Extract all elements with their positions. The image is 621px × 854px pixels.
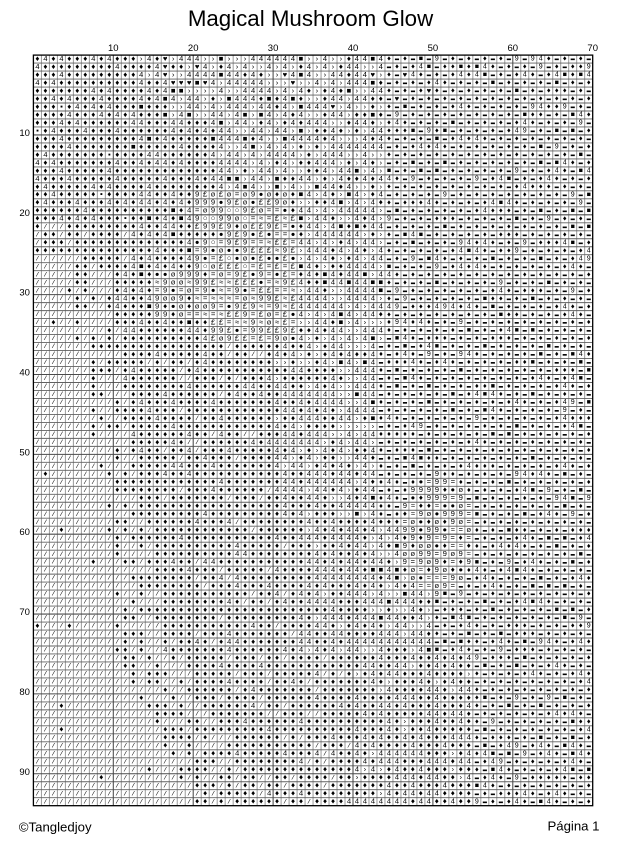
svg-text://////////: ////////// bbox=[36, 455, 116, 462]
svg-text://////////: ////////// bbox=[36, 399, 116, 406]
svg-text:////////////: //////////// bbox=[67, 726, 163, 733]
svg-text:♦♦: ♦♦ bbox=[267, 655, 283, 663]
svg-text:////: //// bbox=[123, 551, 155, 558]
svg-text:♦♦4♦: ♦♦4♦ bbox=[179, 639, 211, 647]
svg-text:♦▬♦▬♦▬■▬♦4♦4♦▬♦▬♦▬♦▬♦▬♦▬♦▬: ♦▬♦▬♦▬■▬♦4♦4♦▬♦▬♦▬♦▬♦▬♦▬♦▬ bbox=[387, 136, 595, 144]
svg-text://: // bbox=[187, 439, 203, 446]
svg-text:♦▬9▬♦▬♦▬♦▬♦▬■♦♦▬♦▬■▬♦▬♦▬♦▬: ♦▬9▬♦▬♦▬♦▬♦▬■♦♦▬♦▬■▬♦▬♦▬♦▬ bbox=[387, 295, 595, 303]
svg-text:70: 70 bbox=[19, 607, 30, 618]
svg-text://: // bbox=[123, 455, 139, 462]
svg-text:♦▬♦▬♦▬♦▬♦▬■▬♦▬♦4■▬■▬♦▬♦▬♦▬: ♦▬♦▬♦▬♦▬♦▬■▬♦▬♦4■▬■▬♦▬♦▬♦▬ bbox=[387, 327, 595, 335]
svg-text:////: //// bbox=[36, 287, 68, 294]
svg-text:♦♦♦4♦♦♦4♦4♦♦4♦4♦♦♦444: ♦♦♦4♦♦♦4♦4♦♦4♦4♦♦♦444 bbox=[307, 735, 475, 743]
svg-text:♦♦♦♦♦♦♦♦4: ♦♦♦♦♦♦♦♦4 bbox=[235, 759, 307, 767]
svg-text:60: 60 bbox=[508, 43, 519, 54]
svg-text:♦: ♦ bbox=[315, 759, 323, 767]
svg-text:////: //// bbox=[195, 742, 227, 749]
svg-text://: // bbox=[307, 710, 323, 717]
svg-text:9▬♦♦♦▬■▬♦▬♦▬♦▬♦: 9▬♦♦♦▬■▬♦▬♦▬♦▬♦ bbox=[475, 655, 595, 663]
svg-text:♦4♦♦♦4♦♦♦4♦4♦44♦4♦4♦999●9£ø●££: ♦4♦♦♦4♦♦♦4♦4♦44♦4♦4♦999●9£ø●££9ø♦››♦♦4■›… bbox=[35, 200, 386, 208]
svg-text://///////////: ///////////// bbox=[36, 694, 140, 701]
svg-text:▬♦4♦▬♦▬♦▬■▬♦▬♦4♦: ▬♦4♦▬♦▬♦▬■▬♦▬♦4♦ bbox=[467, 575, 595, 583]
svg-text://: // bbox=[123, 543, 139, 550]
svg-text:♦♦♦♦♦♦♦♦♦4♦♦44♦♦£99£9♦ø££9£=●♦: ♦♦♦♦♦♦♦♦♦4♦♦44♦♦£99£9♦ø££9£=●♦44›4■♦■♦44 bbox=[67, 224, 386, 232]
svg-text:♦4♦4›♦›♦4♦4♦♦4: ♦4♦4›♦›♦4♦4♦♦4 bbox=[267, 351, 379, 359]
svg-text://: // bbox=[131, 519, 147, 526]
svg-text:♦♦♦♦4♦♦♦♦♦♦: ♦♦♦♦4♦♦♦♦♦♦ bbox=[131, 391, 219, 399]
svg-text:///////: /////// bbox=[36, 383, 92, 390]
svg-text://////////: ////////// bbox=[36, 479, 116, 486]
svg-text:♦4♦♦4444♦♦♦444■444♦♦: ♦4♦♦4444♦♦♦444■444♦♦ bbox=[275, 599, 435, 607]
svg-text:♦♦♦4♦4♦♦♦♦♦♦44♦♦♦44♦♦♦4■›44›♦4: ♦♦♦4♦4♦♦♦♦♦♦44♦♦♦44♦♦♦4■›44›♦4›♦4♦444››♦… bbox=[35, 120, 386, 128]
svg-text://: // bbox=[171, 742, 187, 749]
svg-text:♦♦♦♦♦♦4: ♦♦♦♦♦♦4 bbox=[203, 703, 259, 711]
svg-text:▬♦▬♦4■▬♦♦■♦■4♦▬♦▬♦▬9▬♦▬♦♦9: ▬♦▬♦4■▬♦♦■♦■4♦▬♦▬♦▬9▬♦▬♦♦9 bbox=[387, 64, 595, 72]
svg-text:////////////////: //////////////// bbox=[36, 742, 164, 749]
svg-text:■▬♦▬■▬■▬♦▬♦▬♦▬♦▬9▬♦▬♦4♦▬■4: ■▬♦▬■▬■▬♦▬♦▬♦▬♦▬9▬♦▬♦4♦▬■4 bbox=[387, 168, 595, 176]
svg-text:♦44♦♦49øø9♦≈=≈≈≈=ø≈99£≈£4444››: ♦44♦♦49øø9♦≈=≈≈≈=ø≈99£≈£4444››4444› bbox=[107, 296, 387, 304]
svg-text:♦4♦▬♦: ♦4♦▬♦ bbox=[379, 479, 419, 487]
svg-text://: // bbox=[36, 319, 52, 326]
svg-text:///: /// bbox=[107, 391, 131, 398]
svg-text://: // bbox=[219, 758, 235, 765]
svg-text:30: 30 bbox=[19, 288, 30, 299]
svg-text:♦♦▬♦▬♦▬♦▬94♦4♦▬■▬♦▬: ♦♦▬♦▬♦▬♦▬94♦4♦▬■▬♦▬ bbox=[443, 471, 595, 479]
svg-text:▬♦▬♦▬♦4♦▬■▬■▬♦4: ▬♦▬♦▬♦4♦▬■▬■▬♦4 bbox=[475, 535, 595, 543]
svg-text:▬■▬♦49▬♦4♦▬■4♦▬: ▬■▬♦49▬♦4♦▬■4♦▬ bbox=[475, 742, 595, 750]
svg-text:♦4♦♦♦♦♦4♦4♦♦♦♦4♦♦♦♦♦♦♦♦4›4■4››: ♦4♦♦♦♦♦4♦4♦♦♦♦4♦♦♦♦♦♦♦♦4›4■4››■›4››■44♦4… bbox=[35, 184, 386, 192]
svg-text:▬♦▬■▬♦4■▬♦▬♦▬■▬♦▬♦▬♦▬■▬♦▬♦▬: ▬♦▬■▬♦4■▬♦▬♦▬■▬♦▬♦▬♦▬■▬♦▬♦▬ bbox=[379, 343, 595, 351]
svg-text:♦▬♦♦♦4♦▬♦▬♦▬♦4■4♦▬♦▬♦▬♦▬9▬: ♦▬♦♦♦4♦▬♦▬♦▬♦4■4♦▬♦▬♦▬♦▬9▬ bbox=[387, 199, 595, 207]
svg-text:▬♦▬■▬♦▬♦▬94♦4♦▬♦▬9▬♦♦♦4■▬♦: ▬♦▬■▬♦▬♦▬94♦4♦▬♦▬9▬♦♦♦4■▬♦ bbox=[387, 239, 595, 247]
svg-text://: // bbox=[147, 647, 163, 654]
svg-text://: // bbox=[147, 631, 163, 638]
svg-text:♦♦♦: ♦♦♦ bbox=[163, 727, 187, 735]
svg-text:♦♦♦♦♦♦♦: ♦♦♦♦♦♦♦ bbox=[171, 495, 227, 503]
svg-text:♦: ♦ bbox=[227, 375, 235, 383]
svg-text:♦4♦♦♦♦♦♦♦♦♦♦♦44♦♦♦♦››444: ♦4♦♦♦♦♦♦♦♦♦♦♦44♦♦♦♦››444 bbox=[187, 367, 379, 375]
svg-text:♦♦♦♦♦: ♦♦♦♦♦ bbox=[187, 655, 227, 663]
svg-text:♦▬♦▬♦▬♦▬♦▬♦▬♦▬■♦♦▬♦▬♦▬♦4♦▬: ♦▬♦▬♦▬♦▬♦▬♦▬♦▬■♦♦▬♦▬♦▬♦4♦▬ bbox=[387, 311, 595, 319]
svg-text://////////: ////////// bbox=[36, 591, 116, 598]
svg-text:♦♦♦♦♦♦♦♦♦4♦♦♦♦♦♦♦♦♦4♦4›♦♦♦››■›: ♦♦♦♦♦♦♦♦♦4♦♦♦♦♦♦♦♦♦4♦4›♦♦♦››■›4 bbox=[131, 511, 379, 519]
svg-text:▬9▬♦▬♦▬♦▬♦▬♦▬♦▬♦▬■♦♦▬♦▬■4♦: ▬9▬♦▬♦▬♦▬♦▬♦▬♦▬♦▬■♦♦▬♦▬■4♦ bbox=[387, 112, 595, 120]
svg-text:////////: //////// bbox=[36, 415, 100, 422]
svg-text://: // bbox=[179, 375, 195, 382]
svg-text:■▬♦▬♦▬■▬♦▬♦4■4♦▬♦▬♦▬: ■▬♦▬♦▬■▬♦▬♦4■4♦▬♦▬♦▬ bbox=[435, 599, 595, 607]
svg-text:///: /// bbox=[91, 287, 115, 294]
svg-text:///: /// bbox=[155, 766, 179, 773]
svg-text:♦: ♦ bbox=[115, 535, 123, 543]
svg-text:///: /// bbox=[187, 710, 211, 717]
svg-text:♦♦♦♦♦♦♦♦♦♦♦: ♦♦♦♦♦♦♦♦♦♦♦ bbox=[163, 591, 251, 599]
svg-text:♦94♦4♦▬♦▬9▬♦▬♦▬♦▬♦▬♦▬♦▬♦▬♦: ♦94♦4♦▬♦▬9▬♦▬♦▬♦▬♦▬♦▬♦▬♦▬♦ bbox=[387, 319, 595, 327]
svg-text:■▬♦▬9▬♦4♦▬♦▬■▬♦: ■▬♦▬9▬♦4♦▬♦▬■▬♦ bbox=[475, 559, 595, 567]
svg-text:♦: ♦ bbox=[195, 775, 203, 783]
svg-text:////////////////: //////////////// bbox=[36, 687, 164, 694]
svg-text:///////////////: /////////////// bbox=[36, 710, 156, 717]
svg-text:///////////: /////////// bbox=[36, 607, 124, 614]
svg-text:♦♦: ♦♦ bbox=[75, 272, 91, 280]
svg-text:♦♦♦♦♦♦♦♦♦♦♦♦♦♦♦♦♦♦4♦♦♦4♦♦44444: ♦♦♦♦♦♦♦♦♦♦♦♦♦♦♦♦♦♦4♦♦♦4♦♦44444 bbox=[139, 503, 379, 511]
svg-text:9▬♦▬♦▬♦♦♦▬♦▬♦▬♦▬■▬♦▬9▬♦▬♦▬: 9▬♦▬♦▬♦♦♦▬♦▬♦▬♦▬■▬♦▬9▬♦▬♦▬ bbox=[387, 215, 595, 223]
svg-text:■▬♦▬♦▬■▬♦4♦▬9▬♦: ■▬♦▬♦▬■▬♦4♦▬9▬♦ bbox=[475, 511, 595, 519]
svg-text:///: /// bbox=[139, 599, 163, 606]
svg-text:●=99=: ●=99= bbox=[419, 479, 459, 487]
svg-text:♦▬9▬♦▬♦▬♦▬♦▬■♦♦: ♦▬9▬♦▬♦▬♦▬♦▬■♦♦ bbox=[475, 718, 595, 726]
svg-text:♦♦: ♦♦ bbox=[195, 799, 211, 807]
svg-text:♦: ♦ bbox=[203, 791, 211, 799]
svg-text:▬♦▬♦▬♦▬♦▬♦4♦4♦▬: ▬♦▬♦▬♦▬♦▬♦4♦4♦▬ bbox=[475, 711, 595, 719]
svg-text:♦▬■4♦▬♦▬♦▬♦4■▬■: ♦▬■4♦▬♦▬♦▬♦4■▬■ bbox=[475, 766, 595, 774]
svg-text:♦♦♦♦♦4♦4♦♦♦♦♦44♦44♦: ♦♦♦♦♦4♦4♦♦♦♦♦44♦44♦ bbox=[323, 711, 475, 719]
svg-text:●♦999=9: ●♦999=9 bbox=[411, 495, 467, 503]
svg-text:♦: ♦ bbox=[187, 743, 195, 751]
svg-text:♦♦♦: ♦♦♦ bbox=[139, 495, 163, 503]
svg-text:♦▬♦▬♦▬■▬♦▬♦▬♦▬9▬♦▬♦▬■▬♦▬♦▬: ♦▬♦▬♦▬■▬♦▬♦▬♦▬9▬♦▬♦▬■▬♦▬♦▬ bbox=[387, 279, 595, 287]
svg-text:///: /// bbox=[99, 383, 123, 390]
svg-text:♦♦♦: ♦♦♦ bbox=[243, 671, 267, 679]
svg-text:♦: ♦ bbox=[91, 423, 99, 431]
svg-text:////////////: //////////// bbox=[36, 439, 132, 446]
svg-text:♦▬♦▬♦▬♦4♦▬♦▬♦4♦: ♦▬♦▬♦▬♦4♦▬♦▬♦4♦ bbox=[475, 671, 595, 679]
svg-text:♦: ♦ bbox=[123, 607, 131, 615]
svg-text:4♦♦♦♦♦♦♦♦♦44444444♦4■›ø●≈≈=9ø: 4♦♦♦♦♦♦♦♦♦44444444♦4■›ø●≈≈=9ø bbox=[235, 575, 467, 583]
svg-text://///: ///// bbox=[36, 295, 76, 302]
svg-text:♦♦♦4♦♦♦♦♦4♦♦♦♦♦♦♦♦♦♦♦♦♦44›♦›44: ♦♦♦4♦♦♦♦♦4♦♦♦♦♦♦♦♦♦♦♦♦♦44›♦›44›4››♦♦4›44… bbox=[35, 168, 386, 176]
svg-text:///////: /////// bbox=[36, 423, 92, 430]
svg-text:▪♦4♦♦♦4♦♦♦4♦♦♦♦♦♦4♦4♦4♦44››44›: ▪♦4♦♦♦4♦♦♦4♦♦♦♦♦♦4♦4♦4♦44››44›44›■›♦♦4♦›… bbox=[35, 128, 386, 136]
svg-text:///////////: /////////// bbox=[36, 663, 124, 670]
svg-text:///////////: /////////// bbox=[36, 655, 124, 662]
svg-text:♦4♦4›♦♦444›4››■44›9: ♦4♦4›♦♦444›4››■44›9 bbox=[291, 591, 443, 599]
svg-text:♦♦♦♦♦♦♦♦♦♦♦♦♦4♦♦♦♦♦♦♦44♦444444: ♦♦♦♦♦♦♦♦♦♦♦♦♦4♦♦♦♦♦♦♦44♦444444›4♦ bbox=[115, 479, 379, 487]
svg-text:▬: ▬ bbox=[387, 96, 395, 104]
svg-text:▬♦▬♦▬♦▬♦▬♦▬♦▬♦▬♦▬♦▬♦▬♦▬♦: ▬♦▬♦▬♦▬♦▬♦▬♦▬♦▬♦▬♦▬♦▬♦▬♦ bbox=[403, 96, 595, 104]
svg-text://///: ///// bbox=[36, 271, 76, 278]
svg-text:♦4♦▬: ♦4♦▬ bbox=[379, 495, 411, 503]
svg-text:///: /// bbox=[147, 694, 171, 701]
svg-text:20: 20 bbox=[19, 208, 30, 219]
svg-text:4♦♦: 4♦♦ bbox=[219, 431, 243, 439]
svg-text:49▬♦♦♦494♦4♦▬■▬♦▬♦▬♦▬♦4♦▬♦: 49▬♦♦♦494♦4♦▬■▬♦▬♦▬♦▬♦4♦▬♦ bbox=[387, 303, 595, 311]
svg-text:♦♦♦▪♦4♦4♦4♦♦♦■♦♦♦››44›4›444›44: ♦♦♦▪♦4♦4♦4♦♦♦■♦♦♦››44›4›444›44♦4›■444♥›4… bbox=[35, 104, 386, 112]
svg-text:♦♦♦♦♦♦: ♦♦♦♦♦♦ bbox=[235, 735, 283, 743]
svg-text:♦♦♦♦♦♦♦♦♦♦♦♦♦♦♦4♦♦♦■=9●ø●●9£££: ♦♦♦♦♦♦♦♦♦♦♦♦♦♦♦4♦♦♦■=9●ø●●9£££≈9£›444♦4›… bbox=[35, 248, 386, 256]
svg-text:///////: /////// bbox=[36, 343, 92, 350]
svg-text:■▬♦4♦▬♦▬9▬♦♦♦▬♦▬♦▬♦▬: ■▬♦4♦▬♦▬9▬♦♦♦▬♦▬♦▬♦▬ bbox=[435, 647, 595, 655]
svg-text:4♦♦♦♦♦♦♦4♦♦♦♦♦♦4♦4›4♦4›44››4♦♦: 4♦♦♦♦♦♦♦4♦♦♦♦♦♦4♦4›4♦4›44››4♦♦♦›4■ bbox=[163, 647, 435, 655]
svg-text:♦: ♦ bbox=[91, 335, 99, 343]
svg-text:▬♦▬♦4♦4♦▬♦▬♦▬♦▬♦▬♦▬■▬9▬♦▬♦: ▬♦▬♦4♦4♦▬♦▬♦▬♦▬♦▬♦▬■▬9▬♦▬♦ bbox=[387, 144, 595, 152]
svg-text:4♦♦♦♦444♦44♦■■4■♦ø≈♦9ø♦●: 4♦♦♦♦444♦44♦■■4■♦ø≈♦9ø♦● bbox=[275, 567, 467, 575]
svg-text:♦♦♦♦: ♦♦♦♦ bbox=[291, 783, 323, 791]
svg-text:♦♦4♦4♦♦♦4♦♦♦♦4♦4■4›44›♦›■444♦■: ♦♦4♦4♦♦♦4♦♦♦♦4♦4■4›44›♦›■444♦■♦4■♦››♦44›… bbox=[35, 96, 386, 104]
svg-text://///: ///// bbox=[36, 303, 76, 310]
svg-text:♦♦♦♦♦: ♦♦♦♦♦ bbox=[139, 455, 179, 463]
svg-text:♦♦♦♦♦♦4♦♦♦4♦♦4♦4♦4: ♦♦♦♦♦♦4♦♦♦4♦♦4♦4♦4 bbox=[331, 655, 475, 663]
svg-text:♦▬■▬♦▬■▬♦▬♦▬♦♦■▬♦▬♦▬♦▬♦4♦▬♦: ♦▬■▬♦▬■▬♦▬♦▬♦♦■▬♦▬♦▬♦▬♦4♦▬♦ bbox=[379, 383, 595, 391]
svg-text:4♦♦♦♦♦♦: 4♦♦♦♦♦♦ bbox=[123, 375, 179, 383]
svg-text://: // bbox=[259, 774, 275, 781]
svg-text://///////: ///////// bbox=[36, 503, 108, 510]
svg-text:♦♦♦♦4♦♦♦: ♦♦♦♦4♦♦♦ bbox=[115, 407, 179, 415]
svg-text:9999♦●ø: 9999♦●ø bbox=[411, 487, 467, 495]
svg-text:▬■4♦▬♦♦♦▬♦▬♦▬♦♦♦▬♦▬♦▬♦▬♦▬♦: ▬■4♦▬♦♦♦▬♦▬♦▬♦♦♦▬♦▬♦▬♦▬♦▬♦ bbox=[387, 335, 595, 343]
svg-text:♦♦♦♦♦♦4♦♦♦♦♦♦♦♦♦♦■♦4=ø99○○9£ø=: ♦♦♦♦♦♦4♦♦♦♦♦♦♦♦♦♦■♦4=ø99○○9£ø==●♦44›4›44… bbox=[35, 208, 386, 216]
svg-text:4♦4♦♦♦♦49●=£○●ø●£●●£●›4›4♦›♦4›: 4♦4♦♦♦♦49●=£○●ø●£●●£●›4›4♦›♦4›44 bbox=[131, 256, 387, 264]
svg-text:♦♦♦♦♦♦♦♦♦♦♦♦♦♦4›4›♦4♦♦4♦♦♦›♦♦: ♦♦♦♦♦♦♦♦♦♦♦♦♦♦4›4›♦4♦♦4♦♦♦›♦♦ bbox=[243, 767, 475, 775]
svg-text:♦▬♦▬■▬♦▬♦▬♦4♦♦♦▬♦▬♦▬♦▬♦4♦▬♦: ♦▬♦▬■▬♦▬♦▬♦4♦♦♦▬♦▬♦▬♦▬♦4♦▬♦ bbox=[379, 463, 595, 471]
svg-text:♦♦♦♦♦♦♦♦♦4♦›444♦444■44♦♦4›: ♦♦♦♦♦♦♦♦♦4♦›444♦444■44♦♦4› bbox=[227, 615, 435, 623]
svg-text:♦♦♦›♦♦4♦44›4♦■9♦øø●♦=≈♦: ♦♦♦›♦♦4♦44›4♦■9♦øø●♦=≈♦ bbox=[291, 543, 475, 551]
svg-text:♦♦: ♦♦ bbox=[251, 599, 267, 607]
svg-text:////////: //////// bbox=[36, 463, 100, 470]
svg-text:♦▬■4■▬♦▬♦▬♦▬♦▬♦♦♦▬♦▬♦▬♦▬♦▬: ♦▬■4■▬♦▬♦▬♦▬♦▬♦♦♦▬♦▬♦▬♦▬♦▬ bbox=[387, 231, 595, 239]
svg-text:♦♦♦■▬9♦■▬♦▬♦▬♦▬♦49▬♦▬■▬■▬♦: ♦♦♦■▬9♦■▬♦▬♦▬♦▬♦49▬♦▬■▬■▬♦ bbox=[387, 128, 595, 136]
svg-text:♦♦♦4›♦♦♦♦♦♦4♦››44: ♦♦♦4›♦♦♦♦♦♦4♦››44 bbox=[243, 375, 379, 383]
svg-text:▬♦▬■▬♦▬■▬♦▬♦▬♦▬♦▬♦▬■▬■4♦▬♦: ▬♦▬■▬♦▬■▬♦▬♦▬♦▬♦▬♦▬■▬■4♦▬♦ bbox=[387, 160, 595, 168]
svg-text:♦4♦♦♦4♦♦♦♦4♦♦♦♦♦♦♦4♦♦4♦4444››4: ♦4♦♦♦4♦♦♦♦4♦♦♦♦♦♦♦4♦♦4♦4444››4■ bbox=[131, 399, 379, 407]
svg-text:♦4♦♦♦♦♦♦♦: ♦4♦♦♦♦♦♦♦ bbox=[243, 687, 315, 695]
svg-text:♦4♦■♦●●ø999♦=ø=9£●9=●£=♦4♦■4♦4: ♦4♦■♦●●ø999♦=ø=9£●9=●£=♦4♦■4♦44■›4 bbox=[115, 272, 387, 280]
svg-text://: // bbox=[267, 710, 283, 717]
svg-text:♦4■▬■▬9▬♦4♦▬■4♦: ♦4■▬■▬9▬♦4♦▬■4♦ bbox=[475, 750, 595, 758]
svg-text://///////////: ///////////// bbox=[36, 495, 140, 502]
svg-text:Magical Mushroom Glow: Magical Mushroom Glow bbox=[188, 6, 434, 31]
svg-text:♦♦♦♦4♦♦♦♦♦4♦♦: ♦♦♦♦4♦♦♦♦♦4♦♦ bbox=[123, 351, 227, 359]
svg-text:▬■▬■♦♦▬♦4♦▬■▬94♦▬♦4♦: ▬■▬■♦♦▬♦4♦▬■▬94♦▬♦4♦ bbox=[435, 639, 595, 647]
svg-text:♦♦♦♦♦♦♦♦♦♦♦♦♦♦4●9○=9£9==≈££=44: ♦♦♦♦♦♦♦♦♦♦♦♦♦♦4●9○=9£9==≈££=44›4›♦4›44› bbox=[75, 240, 386, 248]
svg-text://///////////////////: ///////////////////// bbox=[36, 790, 204, 797]
svg-text:■▬9▬♦▬♦▬♦▬♦▬♦▬♦▬♦▬♦: ■▬9▬♦▬♦▬♦▬♦▬♦▬♦▬♦▬♦ bbox=[443, 591, 595, 599]
svg-text:♦: ♦ bbox=[115, 399, 123, 407]
svg-text://: // bbox=[251, 351, 267, 358]
svg-text://////////: ////////// bbox=[36, 311, 116, 318]
svg-text:♦♦♦♦4♦♦♦♦: ♦♦♦♦4♦♦♦♦ bbox=[195, 679, 267, 687]
svg-text:♦♦♦♦: ♦♦♦♦ bbox=[91, 232, 123, 240]
svg-text://: // bbox=[243, 431, 259, 438]
svg-text:♦▬■4■▬♦▬♦▬♦▬♦▬♦▬■▬9▬: ♦▬■4■▬♦▬♦▬♦▬♦▬♦▬■▬9▬ bbox=[435, 615, 595, 623]
svg-text:▬♦▬♦▬♦▬♦▬♦▬♦▬♦4: ▬♦▬♦▬♦▬♦▬♦▬♦▬♦4 bbox=[475, 679, 595, 687]
svg-text:♦▬♦▬♦▬♦▬♦▬♦▬♦▬♦: ♦▬♦▬♦▬♦▬♦▬♦▬♦▬♦ bbox=[475, 687, 595, 695]
svg-text:♦▬♦: ♦▬♦ bbox=[379, 511, 403, 519]
svg-text:▬♦49▬♦▬♦▬♦▬♦4♦▬: ▬♦49▬♦▬♦▬♦▬♦4♦▬ bbox=[475, 758, 595, 766]
svg-text:50: 50 bbox=[428, 43, 439, 54]
svg-text:///////: /////// bbox=[51, 471, 107, 478]
svg-text:♦: ♦ bbox=[227, 767, 235, 775]
svg-text:▬♦▬■4■♦♦▬♦▬♦▬♦▬♦▬♦▬■▬♦▬♦▬♦▬: ▬♦▬■4■♦♦▬♦▬♦▬♦▬♦▬♦▬■▬♦▬♦▬♦▬ bbox=[379, 455, 595, 463]
svg-text:♦♦♦♦♦♦4♦4444444›♦4›44›: ♦♦♦♦♦♦4♦4444444›♦4›44› bbox=[203, 439, 379, 447]
svg-text:♦♦4♦♦44♦››4♦4■: ♦♦4♦♦44♦››4♦4■ bbox=[267, 495, 379, 503]
svg-text:▬♦▬♦▬♦▬: ▬♦▬♦▬♦▬ bbox=[379, 471, 435, 479]
svg-text:♦▬♦4♦▬9▬♦▬94♦▬♦▬♦▬♦▬■▬♦▬■4♦: ♦▬♦4♦▬9▬♦▬94♦▬♦▬♦▬♦▬■▬♦▬■4♦ bbox=[379, 351, 595, 359]
svg-text:▬♦▬♦4♦▬♦▬■▬■▬■▬♦▬: ▬♦▬♦4♦▬♦▬■▬■▬■▬♦▬ bbox=[459, 583, 595, 591]
svg-text:▬■▬♦▬♦▬♦▬♦▬♦▬♦4: ▬■▬♦▬♦▬♦▬♦▬♦▬♦4 bbox=[475, 726, 595, 734]
svg-text:▬♦▬♦▬♦▬♦▬♦▬♦▬♦▬: ▬♦▬♦▬♦▬♦▬♦▬♦▬♦▬ bbox=[475, 519, 595, 527]
svg-text:///////: /////// bbox=[36, 559, 92, 566]
svg-text:♦♦: ♦♦ bbox=[243, 775, 259, 783]
svg-text:♦: ♦ bbox=[91, 375, 99, 383]
svg-text:♦: ♦ bbox=[291, 735, 299, 743]
svg-text:20: 20 bbox=[188, 43, 199, 54]
svg-text:▬♦▬♦▬♦▬♦▬♦▬■▬♦▬: ▬♦▬♦▬♦▬♦▬♦▬■▬♦▬ bbox=[475, 503, 595, 511]
svg-text:♦♦: ♦♦ bbox=[123, 655, 139, 663]
svg-text:▬♦▬♦▬♦▬■▬♦▬♦▬♦▬♦▬♦▬♦▬♦▬■▬■: ▬♦▬♦▬♦▬■▬♦▬♦▬♦▬♦▬♦▬♦▬♦▬■▬■ bbox=[387, 223, 595, 231]
svg-text:♦♦♦♦♦♦4♦♦♦♦♦♦♦♦♦♦♦4♦♦444♦4444♦: ♦♦♦♦♦♦4♦♦♦♦♦♦♦♦♦♦♦4♦♦444♦4444♦›4›4♦9♦9≈9… bbox=[131, 535, 474, 543]
svg-text:40: 40 bbox=[19, 368, 30, 379]
svg-text:♦♦♦♦4♦♦♦4♦4♦4♦♦♦■›4■››44›4■›■4: ♦♦♦♦4♦♦♦4♦4♦4♦♦♦■›4■››44›4■›■4›4♦4››♦44›… bbox=[35, 112, 386, 120]
svg-text:▬♦♦♦4♦▬♦4♦▬♦▬♦▬♦▬♦♦■▬♦▬♦▬■▬: ▬♦♦♦4♦▬♦4♦▬♦▬♦▬♦▬♦♦■▬♦▬♦▬■▬ bbox=[379, 359, 595, 367]
svg-text://///////: ///////// bbox=[107, 774, 179, 781]
svg-text:♦♦♦♦♦♦♦♦♦♦4♦♦♦♦♦: ♦♦♦♦♦♦♦♦♦♦4♦♦♦♦♦ bbox=[155, 543, 283, 551]
svg-text:////////////: //////////// bbox=[36, 511, 132, 518]
svg-text:♦4♦♦♦♦♦: ♦4♦♦♦♦♦ bbox=[123, 367, 179, 375]
svg-text:▬♦▬♦▬♦▬♦▬■▬♦▬■4♦▬♦▬♦▬♦▬9▬♦▬: ▬♦▬♦▬♦▬♦▬■▬♦▬■4♦▬♦▬♦▬♦▬9▬♦▬ bbox=[379, 407, 595, 415]
svg-text:▬♦▬♦49▬♦▬♦▬♦▬♦▬♦▬■▬♦▬♦▬♦4■▬: ▬♦▬♦49▬♦▬♦▬♦▬♦▬♦▬■▬♦▬♦▬♦4■▬ bbox=[379, 423, 595, 431]
svg-text:♦: ♦ bbox=[139, 527, 147, 535]
svg-text:♦♦♦♦♦4: ♦♦♦♦♦4 bbox=[275, 671, 323, 679]
svg-text:♦: ♦ bbox=[107, 327, 115, 335]
svg-text:♦44♦♦♦♦♦♦♦44♦♦4♦44444444444: ♦44♦♦♦♦♦♦♦44♦♦4♦44444444444 bbox=[219, 639, 435, 647]
svg-text:///////: /////// bbox=[36, 375, 92, 382]
svg-text:♦♦♦♦44›♦4›♦♦››44♦: ♦♦♦♦44›♦4›♦♦››44♦ bbox=[243, 455, 379, 463]
svg-text://///////////: ///////////// bbox=[36, 583, 140, 590]
svg-text:♦▬♦▬♦▬♦▬♦▬■▬♦▬♦♦♦▬♦▬: ♦▬♦▬♦▬♦▬♦▬■▬♦▬♦♦♦▬♦▬ bbox=[435, 88, 595, 96]
svg-text:▬♦4♦▬9▬♦♦♦♦♦▬♦♦: ▬♦4♦▬9▬♦♦♦♦♦▬♦♦ bbox=[475, 774, 595, 782]
svg-text:♦▬♦▬■▬9▬♦▬♦▬♦▬♦▬9▬94♦▬♦▬♦▬: ♦▬♦▬■▬9▬♦▬♦▬♦▬♦▬9▬94♦▬♦▬♦▬ bbox=[387, 56, 595, 64]
svg-text:///////////: /////////// bbox=[36, 615, 124, 622]
svg-text:♦: ♦ bbox=[115, 447, 123, 455]
svg-text:♦♦♦♦4♦♦♦: ♦♦♦♦4♦♦♦ bbox=[155, 567, 219, 575]
svg-text:♦4♦♦♦♦♦♦♦▪♦♦♦♦44♦♦♦♦♦♦4›44›4›4: ♦4♦♦♦♦♦♦♦▪♦♦♦♦44♦♦♦♦♦♦4›44›4›4444›♦›444›… bbox=[35, 152, 386, 160]
svg-text:///: /// bbox=[171, 671, 195, 678]
svg-text:♦♦♦♦♦♦♦›4♦♦♦♦44♦›44: ♦♦♦♦♦♦♦›4♦♦♦♦44♦›44 bbox=[323, 687, 475, 695]
svg-text:♦♦♦4♦♦♦♦♦♦♦♦♦4■♦4♦♦♦♦♦■444■♦4›: ♦♦♦4♦♦♦♦♦♦♦♦♦4■♦4♦♦♦♦♦■444■♦4››■4444♦4››… bbox=[35, 136, 386, 144]
svg-text:♦♦▬: ♦♦▬ bbox=[379, 503, 403, 511]
svg-text:♦♦4♦: ♦♦4♦ bbox=[275, 679, 307, 687]
svg-text:♦♦♦♦♦♦♦4♦♦4♦♦♦4♦♦♦: ♦♦♦♦♦♦♦4♦♦4♦♦♦4♦♦♦ bbox=[331, 783, 475, 791]
svg-text:♦♦♦: ♦♦♦ bbox=[235, 655, 259, 663]
svg-text:4♦4♦♦♦♦4♦♦♦4♦♦♦: 4♦4♦♦♦♦4♦♦♦4♦♦♦ bbox=[355, 743, 475, 751]
svg-text:///: /// bbox=[91, 271, 115, 278]
svg-text:♦♦♦♦♦≈9øø≈99£≈≈£££●=≈9£4♦♦■44■: ♦♦♦♦♦≈9øø≈99£≈≈£££●=≈9£4♦♦■44■44■■ bbox=[115, 280, 387, 288]
svg-text:///: /// bbox=[43, 623, 67, 630]
svg-text:44♦♦44♦♦♦♦444›44♦: 44♦♦44♦♦♦♦444›44♦ bbox=[299, 631, 435, 639]
svg-text:♦: ♦ bbox=[91, 383, 99, 391]
svg-text:♦♦♦♦♦♦♦♦♦♦♦♦: ♦♦♦♦♦♦♦♦♦♦♦♦ bbox=[155, 527, 251, 535]
svg-text:///: /// bbox=[211, 734, 235, 741]
svg-text:50: 50 bbox=[19, 447, 30, 458]
svg-text:///: /// bbox=[99, 375, 123, 382]
svg-text:♦4♦4♦♦♦4♦4♦♦♦›4♦♥›444››■›››444: ♦4♦4♦♦♦4♦4♦♦♦›4♦♥›444››■›››444444■››4››♦… bbox=[35, 56, 386, 64]
svg-text:♦≈9ø●999=: ♦≈9ø●999= bbox=[403, 511, 475, 519]
svg-text:///: /// bbox=[163, 663, 187, 670]
svg-text:♦♦♦♦4♦♦♦♦♦♦♦■♦♦♦♦♦4♦♦♦♦4››4■›4: ♦♦♦♦4♦♦♦♦♦♦♦■♦♦♦♦♦4♦♦♦♦4››4■›4›4›♦›♦›444… bbox=[35, 144, 386, 152]
svg-text:▬9▬♦▬♦▬♦▬♦▬♦▬♦4♦▬♦♦♦▬♦▬9▬♦: ▬9▬♦▬♦▬♦▬♦▬♦▬♦4♦▬♦♦♦▬♦▬9▬♦ bbox=[387, 287, 595, 295]
svg-text:///////: /////// bbox=[36, 359, 92, 366]
svg-text:♦: ♦ bbox=[131, 671, 139, 679]
svg-text://///: ///// bbox=[36, 335, 76, 342]
svg-text:♦♦♦♦♦♦♦♦♦♦♦: ♦♦♦♦♦♦♦♦♦♦♦ bbox=[227, 743, 315, 751]
svg-text:///////////: /////////// bbox=[36, 639, 124, 646]
svg-text:♦♦4♦♦♦: ♦♦4♦♦♦ bbox=[187, 455, 235, 463]
svg-text:♦▬: ♦▬ bbox=[387, 72, 403, 80]
svg-text:▬♦▬■4♦▬♦▬♦▬♦▬♦▬♦▬♦▬♦4♦▬♦4■▬: ▬♦▬■4♦▬♦▬♦▬♦▬♦▬♦▬♦▬♦4♦▬♦4■▬ bbox=[379, 375, 595, 383]
svg-text:♦: ♦ bbox=[75, 296, 83, 304]
svg-text:4♦♦♦4♦♦♦♦♦4♦♦♦♦♦4♦♦♦4♦44■■›44›: 4♦♦♦4♦♦♦♦♦4♦♦♦♦♦4♦♦♦4♦44■■›44›■♦♦44›♦›4♦… bbox=[35, 176, 386, 184]
svg-text:♦▬♦▬■▬♦▬■▬♦▬♦▬♦: ♦▬♦▬■▬♦▬■▬♦▬♦▬♦ bbox=[475, 703, 595, 711]
svg-text://: // bbox=[147, 639, 163, 646]
svg-text:////: //// bbox=[99, 431, 131, 438]
svg-text:♦: ♦ bbox=[331, 671, 339, 679]
svg-text:♦♦♦♦: ♦♦♦♦ bbox=[291, 655, 323, 663]
svg-text:4♦4♦♦♦♦♦♦♦4♦♦4♦44♦4♦♦♦♦4444›4›: 4♦4♦♦♦♦♦♦♦4♦♦4♦44♦4♦♦♦♦4444›4›♦4›♦♦444›♦… bbox=[35, 160, 386, 168]
svg-text:♦♦♦: ♦♦♦ bbox=[195, 375, 219, 383]
svg-text://: // bbox=[139, 663, 155, 670]
svg-text:▬♦▬♦▬♦▬♦▬♦▬♦4♦▬♦▬♦▬♦▬♦▬♦▬♦▬: ▬♦▬♦▬♦▬♦▬♦▬♦4♦▬♦▬♦▬♦▬♦▬♦▬♦▬ bbox=[379, 439, 595, 447]
svg-text:♦♦♦♦♦♦♦♦: ♦♦♦♦♦♦♦♦ bbox=[155, 615, 219, 623]
svg-text:▬■▬♦▬♦▬♦▬♦▬♦4♦♦♦▬♦▬■▬♦▬■▬■: ▬■▬♦▬♦▬♦▬♦▬♦4♦♦♦▬♦▬■▬♦▬■▬■ bbox=[387, 207, 595, 215]
svg-text:♦♦♦♦♦♦4♦♦♦♦4♦♦♦♦444♦♦4♦♦♦♦: ♦♦♦♦♦♦4♦♦♦♦4♦♦♦♦444♦♦4♦♦♦♦ bbox=[267, 695, 475, 703]
svg-text:♦♦: ♦♦ bbox=[75, 264, 91, 272]
svg-text:80: 80 bbox=[19, 687, 30, 698]
svg-text:♦▬♦▬♦▬♦▬♦▬♦▬♦▬♦▬♦▬♦▬♦▬♦▬■▬: ♦▬♦▬♦▬♦▬♦▬♦▬♦▬♦▬♦▬♦▬♦▬♦▬■▬ bbox=[387, 152, 595, 160]
svg-text:▬♦▬9▬■4♦▬♦▬♦▬■▬♦▬♦▬■▬♦▬♦49: ▬♦▬9▬■4♦▬♦▬♦▬■▬♦▬♦▬■▬♦▬♦49 bbox=[387, 255, 595, 263]
svg-text://: // bbox=[107, 415, 123, 422]
svg-text:♦♦♦♦♦99♦ø==≈=≈££9=£ø=£●4›4›4■4: ♦♦♦♦♦99♦ø==≈=≈££9=£ø=£●4›4›4■4›44♦ bbox=[115, 312, 387, 320]
svg-text:♦▬♦▬♦▬■▬♦▬♦▬♦▬♦▬♦4♦▬♦▬♦49▬■: ♦▬♦▬♦▬■▬♦▬♦▬♦▬♦▬♦4♦▬♦▬♦49▬■ bbox=[379, 399, 595, 407]
svg-text:////: //// bbox=[83, 319, 115, 326]
svg-text:♦♦♦♦4■♦4♦4♦♦9○ø£££○=£=£=£■4♦›♦: ♦♦♦♦4■♦4♦4♦♦9○ø£££○=£=£=£■4♦›♦♦4444› bbox=[99, 264, 387, 272]
svg-text:♦♦: ♦♦ bbox=[43, 232, 59, 240]
svg-text:♦♦♦: ♦♦♦ bbox=[235, 495, 259, 503]
svg-text:4♦♦♦♦♦♦♦♦♦4♦♦♦♦4♥♦♦›♥4›♦4›4››4: 4♦♦♦♦♦♦♦♦♦4♦♦♦♦4♥♦♦›♥4›♦4›4››4›4›♦4›4›♦4… bbox=[35, 64, 386, 72]
svg-text:♦♦♦♦♦♦♦♦4♦: ♦♦♦♦♦♦♦♦4♦ bbox=[163, 599, 243, 607]
svg-text:///////////////: /////////////// bbox=[36, 567, 156, 574]
svg-text://: // bbox=[91, 303, 107, 310]
svg-text:♦♦♦: ♦♦♦ bbox=[43, 240, 67, 248]
svg-text:♦♦♦♦♦♦: ♦♦♦♦♦♦ bbox=[235, 799, 283, 807]
svg-text:♦♦♦♦♦♦♦♦4♦♦4♦♦♦♦4♦♦♦=ø●♦ø♦9ø=: ♦♦♦♦♦♦♦♦4♦♦4♦♦♦♦4♦♦♦=ø●♦ø♦9ø= bbox=[243, 519, 475, 527]
svg-text:♦: ♦ bbox=[91, 359, 99, 367]
svg-text:♦♦♦♦♦♦♦♦4♦♦♦♦♦♦44♦♦44♦♦›4♦4››4: ♦♦♦♦♦♦♦♦4♦♦♦♦♦♦44♦♦44♦♦›4♦4››444 bbox=[123, 383, 379, 391]
svg-text:♦♦♦♦♦▬♦▬♦▬♦▬♦▬■▬■▬♦▬♦▬♦▬♦▬♦: ♦♦♦♦♦▬♦▬♦▬♦▬♦▬■▬■▬♦▬♦▬♦▬♦▬♦ bbox=[379, 431, 595, 439]
svg-text:♦♦: ♦♦ bbox=[291, 799, 307, 807]
svg-text:♦▬♦▬♦: ♦▬♦▬♦ bbox=[387, 88, 427, 96]
svg-text://///: ///// bbox=[36, 279, 76, 286]
svg-text:♦♦♦44♦444››4›44: ♦♦♦44♦444››4›44 bbox=[259, 431, 379, 439]
svg-text:♦: ♦ bbox=[179, 703, 187, 711]
svg-text:♦: ♦ bbox=[219, 799, 227, 807]
svg-text:♦4♦♦♦■9♦●ø♦øø9=●9£9≈=9≈£444444: ♦4♦♦♦■9♦●ø♦øø9=●9£9≈=9≈£444444›4›44 bbox=[107, 304, 387, 312]
svg-text:////////////////////: //////////////////// bbox=[36, 758, 196, 765]
svg-text:♦4♦♦♦♦♦♦♦♦››♦››♦4›■4›■4: ♦4♦♦♦♦♦♦♦♦››♦››♦4›■4›■4 bbox=[195, 359, 379, 367]
svg-text:4♦▬9▬♦▬♦▬♦▬9▬♦4■▬♦▬♦4♦▬♦▬♦: 4♦▬9▬♦▬♦▬♦▬9▬♦4■▬♦▬♦4♦▬♦▬♦ bbox=[387, 176, 595, 184]
svg-text:▬♦♦♦▬♦▬■▬♦▬♦▬♦▬■▬■▬♦: ▬♦♦♦▬♦▬■▬♦▬♦▬♦▬■▬■▬♦ bbox=[435, 607, 595, 615]
svg-text:♦: ♦ bbox=[163, 639, 171, 647]
svg-text:♦♦♦♦: ♦♦♦♦ bbox=[227, 695, 259, 703]
svg-text://////////: ////////// bbox=[36, 647, 116, 654]
svg-text:■4♦▬♦▬♦▬♦▬♦▬♦▬♦: ■4♦▬♦▬♦▬♦▬♦▬♦▬♦ bbox=[475, 782, 595, 790]
svg-text:▬■▬♦▬■▬♦▬♦4♦▬♦▬: ▬■▬♦▬■▬♦▬♦4♦▬♦▬ bbox=[475, 663, 595, 671]
svg-text:////////////: //////////// bbox=[36, 671, 132, 678]
svg-text://////////: ////////// bbox=[36, 519, 116, 526]
svg-text:©Tangledjoy: ©Tangledjoy bbox=[19, 820, 92, 835]
svg-text:9: 9 bbox=[435, 471, 443, 479]
svg-text://///: ///// bbox=[75, 623, 115, 630]
svg-text:♦: ♦ bbox=[123, 639, 131, 647]
